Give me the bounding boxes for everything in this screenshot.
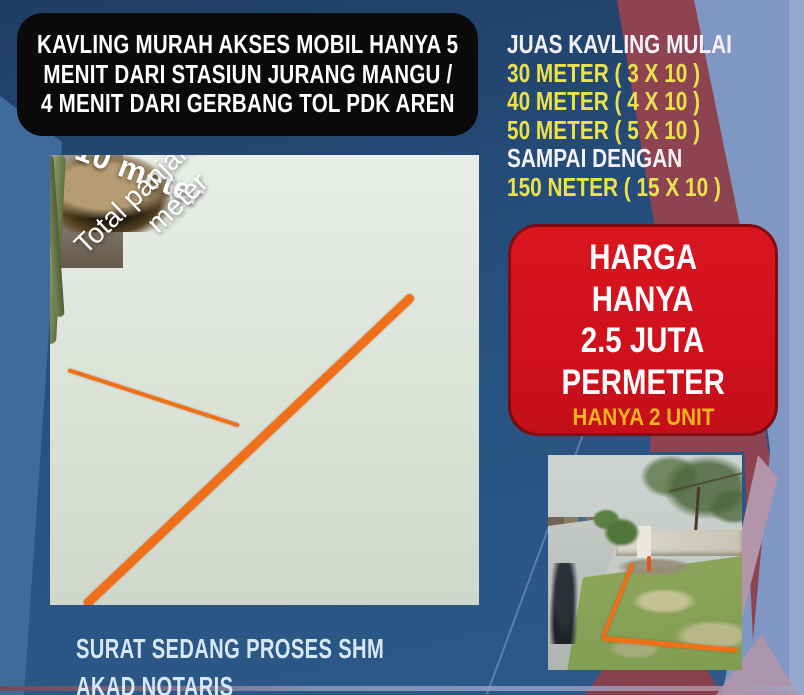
headline-panel: KAVLING MURAH AKSES MOBIL HANYA 5 MENIT … [17, 13, 478, 136]
price-line-3: 2.5 JUTA [581, 320, 705, 362]
size-list: JUAS KAVLING MULAI 30 METER ( 3 X 10 ) 4… [507, 30, 788, 202]
main-land-photo: 10 meter Total panjang 50 meter [50, 155, 479, 605]
size-list-item-40m: 40 METER ( 4 X 10 ) [507, 87, 732, 116]
price-line-1: HARGA [589, 237, 697, 279]
photo2-motorbike [550, 563, 579, 645]
secondary-land-photo [548, 455, 742, 670]
price-line-2: HANYA [592, 279, 694, 321]
price-note: HANYA 2 UNIT [572, 404, 714, 432]
headline-line-2: MENIT DARI STASIUN JURANG MANGU / [43, 60, 452, 90]
size-list-item-150m: 150 NETER ( 15 X 10 ) [507, 173, 732, 202]
size-list-item-50m: 50 METER ( 5 X 10 ) [507, 116, 732, 145]
flyer-canvas: KAVLING MURAH AKSES MOBIL HANYA 5 MENIT … [0, 0, 804, 695]
bg-right-edge-band [789, 0, 804, 695]
price-panel: HARGA HANYA 2.5 JUTA PERMETER HANYA 2 UN… [508, 224, 778, 436]
size-list-upto-label: SAMPAI DENGAN [507, 144, 732, 173]
width-measure-line [67, 368, 239, 427]
legal-note-line-1: SURAT SEDANG PROSES SHM [76, 630, 384, 668]
price-line-4: PERMETER [561, 362, 724, 404]
headline-line-3: 4 MENIT DARI GERBANG TOL PDK AREN [41, 89, 455, 119]
legal-note: SURAT SEDANG PROSES SHM AKAD NOTARIS [76, 630, 504, 695]
photo2-corner-stake [647, 556, 651, 572]
size-list-item-30m: 30 METER ( 3 X 10 ) [507, 59, 732, 88]
size-list-title: JUAS KAVLING MULAI [507, 30, 732, 59]
headline-line-1: KAVLING MURAH AKSES MOBIL HANYA 5 [37, 30, 458, 60]
length-measure-line [82, 292, 416, 605]
legal-note-line-2: AKAD NOTARIS [76, 668, 384, 695]
